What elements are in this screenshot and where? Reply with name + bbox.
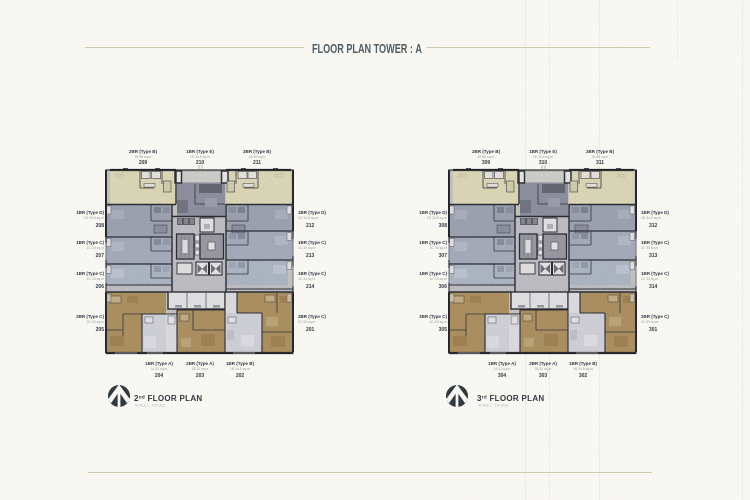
svg-text:310: 310 <box>539 160 548 166</box>
svg-text:208: 208 <box>96 223 105 229</box>
svg-text:29.58 sq.m: 29.58 sq.m <box>135 155 152 159</box>
svg-text:1BR (Type A): 1BR (Type A) <box>488 361 516 366</box>
svg-text:211: 211 <box>253 160 261 166</box>
svg-text:302: 302 <box>579 373 588 379</box>
svg-text:2BR (Type B): 2BR (Type B) <box>586 149 614 154</box>
svg-text:313: 313 <box>649 253 658 259</box>
svg-text:213: 213 <box>306 253 315 259</box>
svg-text:307: 307 <box>439 253 448 259</box>
svg-text:1D 34.5 sq.m: 1D 34.5 sq.m <box>427 216 447 220</box>
svg-text:1BR (Type A): 1BR (Type A) <box>145 361 173 366</box>
svg-text:SCALE 1 : 100 (A3): SCALE 1 : 100 (A3) <box>135 404 165 408</box>
svg-text:1BR (Type C): 1BR (Type C) <box>419 240 447 245</box>
svg-text:1BR (Type C): 1BR (Type C) <box>298 271 326 276</box>
svg-text:203: 203 <box>196 373 205 379</box>
svg-text:1BR (Type D): 1BR (Type D) <box>76 210 104 215</box>
svg-text:1BR (Type C): 1BR (Type C) <box>298 240 326 245</box>
svg-text:1B 34.5 sq.m: 1B 34.5 sq.m <box>573 367 593 371</box>
svg-text:201: 201 <box>306 327 315 333</box>
svg-text:2C 63 sq.m: 2C 63 sq.m <box>87 320 105 324</box>
svg-text:SCALE 1 : 100 (A3): SCALE 1 : 100 (A3) <box>478 404 508 408</box>
svg-text:1C 34 sq.m: 1C 34 sq.m <box>430 246 448 250</box>
svg-text:14.32 sq.m: 14.32 sq.m <box>151 367 168 371</box>
svg-text:207: 207 <box>96 253 105 259</box>
svg-text:314: 314 <box>649 284 658 290</box>
svg-text:1BR (Type D): 1BR (Type D) <box>298 210 326 215</box>
svg-text:2nd FLOOR PLAN: 2nd FLOOR PLAN <box>134 394 203 403</box>
svg-text:14.32 sq.m: 14.32 sq.m <box>494 367 511 371</box>
svg-text:305: 305 <box>439 327 448 333</box>
svg-text:28.32 sq.m: 28.32 sq.m <box>192 367 209 371</box>
svg-text:1B 34.5 sq.m: 1B 34.5 sq.m <box>230 367 250 371</box>
svg-text:1BR (Type C): 1BR (Type C) <box>641 240 669 245</box>
svg-text:1BR (Type C): 1BR (Type C) <box>76 271 104 276</box>
svg-text:29.58 sq.m: 29.58 sq.m <box>592 155 609 159</box>
svg-text:2BR (Type A): 2BR (Type A) <box>529 361 557 366</box>
svg-text:1D 34.5 sq.m: 1D 34.5 sq.m <box>298 216 318 220</box>
svg-text:1C 34 sq.m: 1C 34 sq.m <box>87 277 105 281</box>
svg-text:29.58 sq.m: 29.58 sq.m <box>249 155 266 159</box>
svg-text:210: 210 <box>196 160 205 166</box>
svg-text:1BR (Type B): 1BR (Type B) <box>569 361 597 366</box>
svg-text:1BR (Type C): 1BR (Type C) <box>76 240 104 245</box>
svg-text:28.32 sq.m: 28.32 sq.m <box>535 367 552 371</box>
svg-text:312: 312 <box>649 223 658 229</box>
svg-text:1C 34 sq.m: 1C 34 sq.m <box>430 277 448 281</box>
svg-text:1BR (Type E): 1BR (Type E) <box>529 149 557 154</box>
svg-text:29.58 sq.m: 29.58 sq.m <box>478 155 495 159</box>
svg-text:303: 303 <box>539 373 548 379</box>
svg-text:1BR (Type D): 1BR (Type D) <box>419 210 447 215</box>
svg-text:306: 306 <box>439 284 448 290</box>
svg-text:1C 34 sq.m: 1C 34 sq.m <box>298 246 316 250</box>
svg-text:1E 34.5 sq.m: 1E 34.5 sq.m <box>533 155 553 159</box>
svg-text:2C 63 sq.m: 2C 63 sq.m <box>641 320 659 324</box>
svg-text:2BR (Type C): 2BR (Type C) <box>641 314 669 319</box>
svg-text:2BR (Type B): 2BR (Type B) <box>243 149 271 154</box>
svg-text:214: 214 <box>306 284 315 290</box>
svg-text:1C 34 sq.m: 1C 34 sq.m <box>641 277 659 281</box>
svg-text:1C 34 sq.m: 1C 34 sq.m <box>87 246 105 250</box>
svg-text:204: 204 <box>155 373 164 379</box>
svg-text:2C 63 sq.m: 2C 63 sq.m <box>298 320 316 324</box>
svg-text:1BR (Type C): 1BR (Type C) <box>419 271 447 276</box>
svg-text:311: 311 <box>596 160 604 166</box>
svg-text:301: 301 <box>649 327 658 333</box>
svg-text:1C 34 sq.m: 1C 34 sq.m <box>641 246 659 250</box>
svg-text:2BR (Type C): 2BR (Type C) <box>419 314 447 319</box>
svg-text:1BR (Type B): 1BR (Type B) <box>226 361 254 366</box>
svg-text:1D 34.5 sq.m: 1D 34.5 sq.m <box>84 216 104 220</box>
svg-text:308: 308 <box>439 223 448 229</box>
svg-text:209: 209 <box>139 160 148 166</box>
svg-text:2BR (Type A): 2BR (Type A) <box>186 361 214 366</box>
svg-text:1BR (Type E): 1BR (Type E) <box>186 149 214 154</box>
svg-text:1D 34.5 sq.m: 1D 34.5 sq.m <box>641 216 661 220</box>
svg-text:1C 34 sq.m: 1C 34 sq.m <box>298 277 316 281</box>
svg-text:2BR (Type C): 2BR (Type C) <box>298 314 326 319</box>
svg-text:309: 309 <box>482 160 491 166</box>
svg-text:3rd FLOOR PLAN: 3rd FLOOR PLAN <box>477 394 544 403</box>
svg-text:2C 63 sq.m: 2C 63 sq.m <box>430 320 448 324</box>
svg-text:304: 304 <box>498 373 507 379</box>
svg-text:206: 206 <box>96 284 105 290</box>
svg-text:2BR (Type C): 2BR (Type C) <box>76 314 104 319</box>
svg-text:212: 212 <box>306 223 315 229</box>
svg-text:2BR (Type B): 2BR (Type B) <box>472 149 500 154</box>
svg-text:1BR (Type D): 1BR (Type D) <box>641 210 669 215</box>
svg-text:1E 34.5 sq.m: 1E 34.5 sq.m <box>190 155 210 159</box>
svg-text:205: 205 <box>96 327 105 333</box>
svg-text:202: 202 <box>236 373 245 379</box>
svg-text:1BR (Type C): 1BR (Type C) <box>641 271 669 276</box>
svg-text:2BR (Type B): 2BR (Type B) <box>129 149 157 154</box>
